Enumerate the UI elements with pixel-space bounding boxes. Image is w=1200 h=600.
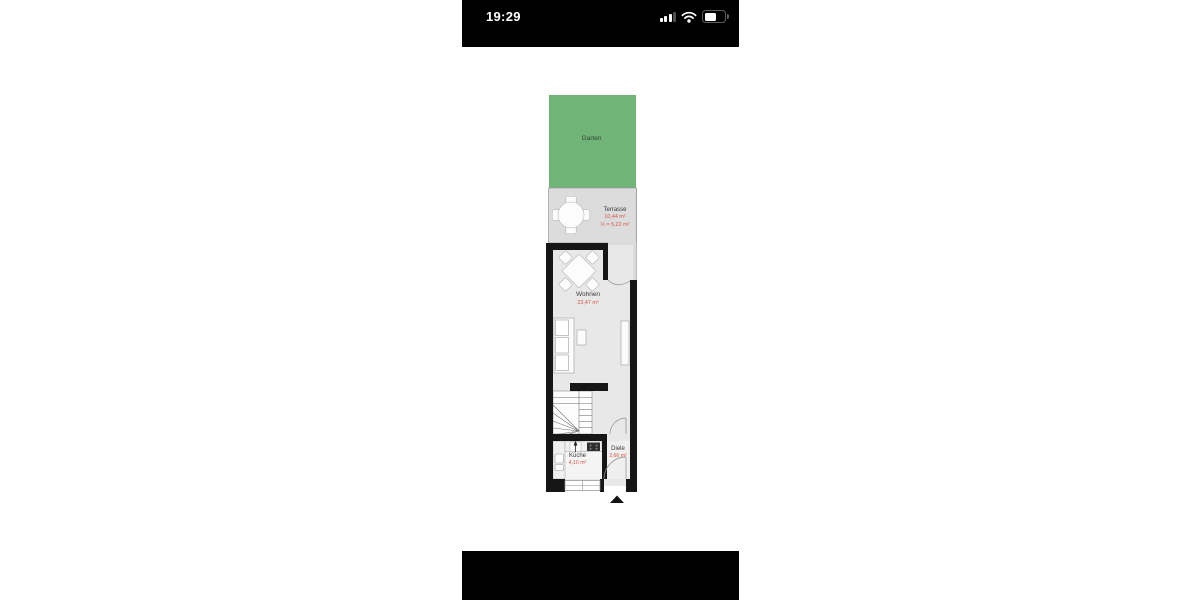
hallway-area-value: 2,66 m² bbox=[599, 454, 637, 459]
floorplan-viewport[interactable]: Garten Terrasse 10,44 m² ½ = 5,22 m² Woh… bbox=[462, 47, 739, 551]
wifi-icon bbox=[681, 11, 697, 23]
living-room-label: Wohnen bbox=[546, 292, 630, 299]
cellular-signal-icon bbox=[660, 12, 677, 22]
battery-icon bbox=[702, 10, 726, 23]
side-table-icon bbox=[577, 330, 586, 345]
hallway-label: Diele bbox=[599, 446, 637, 452]
stairs-icon bbox=[553, 391, 592, 434]
kitchen-label: Küche bbox=[553, 453, 602, 459]
screenshot-canvas: 19:29 bbox=[0, 0, 1200, 600]
sideboard-icon bbox=[621, 321, 629, 365]
terrace-half-area-value: ½ = 5,22 m² bbox=[593, 223, 637, 228]
sofa-icon bbox=[554, 318, 574, 373]
phone-screen: 19:29 bbox=[462, 0, 739, 600]
terrace-label: Terrasse bbox=[593, 207, 637, 213]
living-dining-set-icon bbox=[558, 250, 599, 291]
status-time: 19:29 bbox=[486, 9, 521, 24]
living-room-area-value: 23,47 m² bbox=[546, 301, 630, 306]
status-icons bbox=[660, 10, 727, 23]
kitchen-area-value: 4,10 m² bbox=[553, 461, 602, 466]
bottom-bar bbox=[462, 551, 739, 600]
status-bar: 19:29 bbox=[462, 0, 739, 47]
walk-direction-arrow-icon bbox=[570, 441, 581, 452]
window-icon bbox=[565, 481, 600, 491]
terrace-area-value: 10,44 m² bbox=[593, 215, 637, 220]
entrance-marker-triangle-icon bbox=[610, 496, 624, 504]
garden-label: Garten bbox=[546, 136, 637, 143]
floorplan: Garten Terrasse 10,44 m² ½ = 5,22 m² Woh… bbox=[546, 95, 637, 505]
